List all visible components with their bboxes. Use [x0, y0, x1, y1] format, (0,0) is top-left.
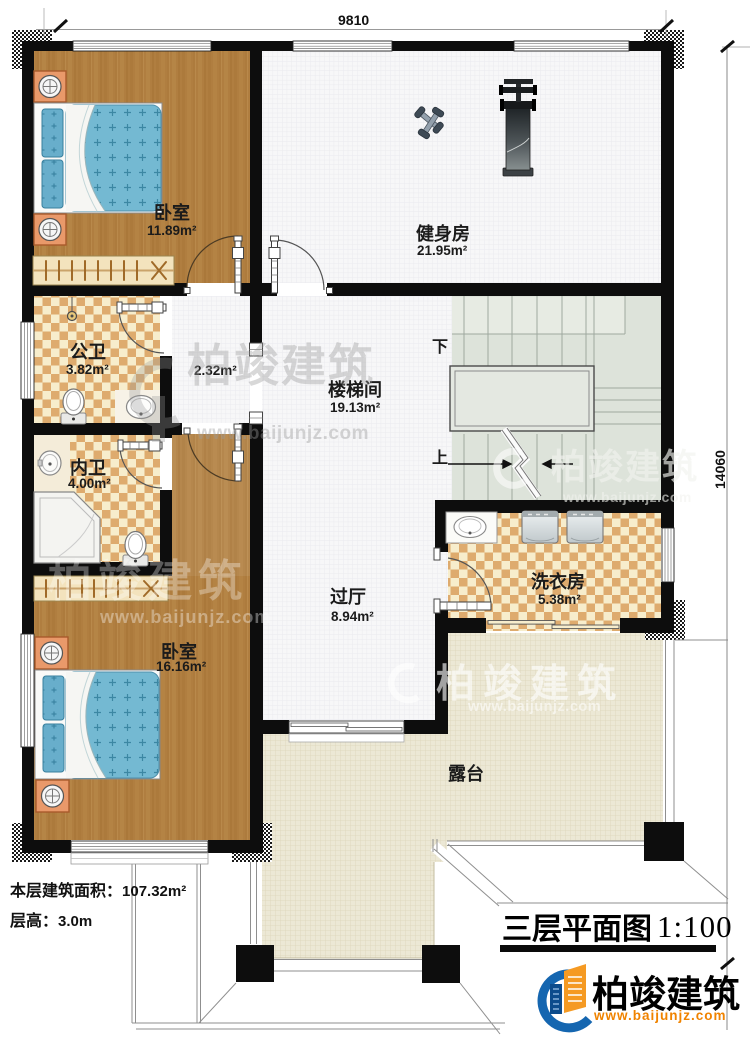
svg-text:过厅: 过厅 [330, 586, 366, 607]
svg-text:三层平面图: 三层平面图 [502, 913, 652, 946]
svg-text:下: 下 [432, 339, 448, 356]
svg-text:21.95m²: 21.95m² [417, 243, 468, 258]
svg-text:内卫: 内卫 [70, 457, 106, 478]
svg-text:www.baijunjz.com: www.baijunjz.com [593, 1008, 727, 1023]
svg-text:www.baijunjz.com: www.baijunjz.com [99, 607, 271, 627]
svg-text:卧室: 卧室 [154, 202, 190, 223]
svg-text:19.13m²: 19.13m² [330, 400, 381, 415]
svg-text:www.baijunjz.com: www.baijunjz.com [467, 699, 601, 715]
svg-text:柏竣建筑: 柏竣建筑 [551, 447, 699, 487]
svg-text:健身房: 健身房 [416, 223, 470, 244]
svg-text:洗衣房: 洗衣房 [531, 571, 585, 592]
svg-text:1:100: 1:100 [657, 909, 733, 944]
svg-text:上: 上 [432, 449, 448, 467]
svg-text:4.00m²: 4.00m² [68, 476, 111, 491]
svg-text:3.82m²: 3.82m² [66, 362, 109, 377]
svg-text:柏竣建筑: 柏竣建筑 [187, 340, 375, 391]
svg-text:9810: 9810 [338, 12, 369, 28]
svg-text:14060: 14060 [712, 450, 728, 489]
svg-text:本层建筑面积：107.32m²: 本层建筑面积：107.32m² [10, 881, 186, 900]
svg-text:柏竣建筑: 柏竣建筑 [48, 557, 248, 606]
svg-text:16.16m²: 16.16m² [156, 659, 207, 674]
svg-text:11.89m²: 11.89m² [147, 223, 197, 238]
svg-text:5.38m²: 5.38m² [538, 592, 581, 607]
svg-text:露台: 露台 [448, 763, 484, 784]
svg-text:www.baijunjz.com: www.baijunjz.com [562, 489, 692, 505]
svg-text:层高：3.0m: 层高：3.0m [10, 911, 92, 930]
svg-text:公卫: 公卫 [70, 342, 106, 362]
svg-text:8.94m²: 8.94m² [331, 609, 374, 624]
svg-text:www.baijunjz.com: www.baijunjz.com [196, 423, 369, 444]
